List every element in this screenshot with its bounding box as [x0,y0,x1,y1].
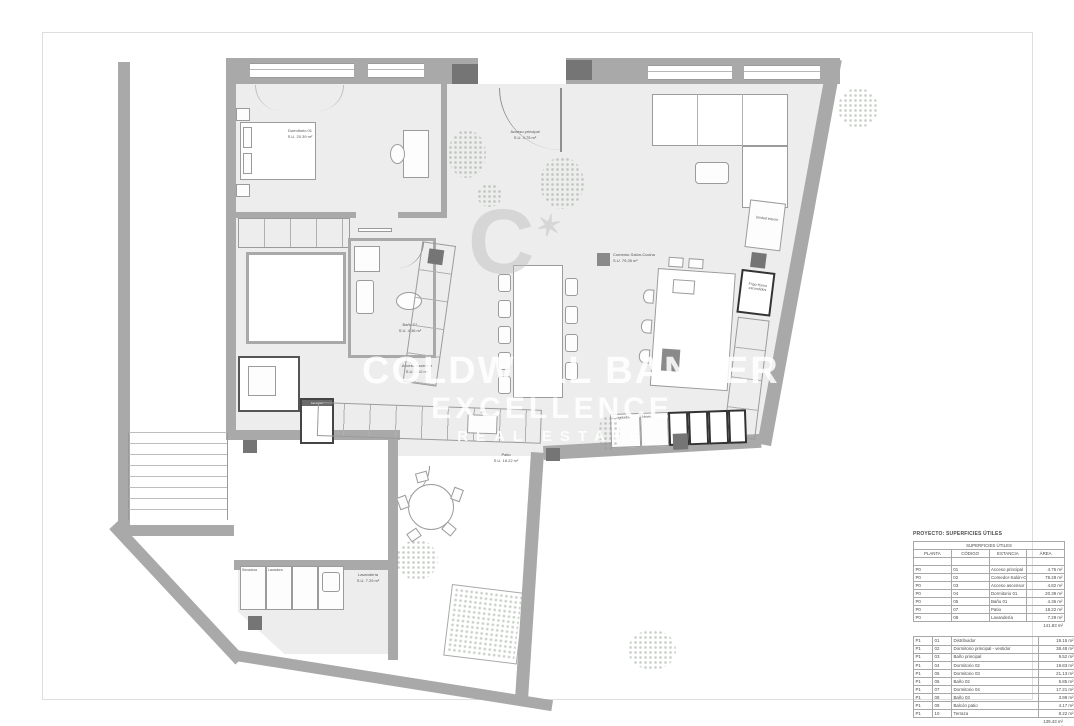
column [427,248,444,265]
wall-patio-right [515,452,544,701]
watermark-line3: REAL ESTATE [362,428,742,445]
plant [396,540,438,580]
table-cell: 07 [933,686,952,694]
table-cell: P0 [914,598,952,606]
sliding-door [358,228,392,232]
table-cell: Dormitorio 02 [952,661,1039,669]
island-sink [672,279,695,295]
room-label-lavanderia: Lavandería S.U. 7.29 m² [346,572,390,584]
fridge-oven-column: Frigo-Horno escondidos [736,269,775,317]
table-cell: P1 [914,661,933,669]
table-cell: P0 [914,573,952,581]
table-cell: 07 [951,606,989,614]
table-cell: P1 [914,710,933,718]
table-row: P107Dormitorio 0417.21 m² [914,686,1074,694]
table-cell: 08 [933,694,952,702]
column [546,448,560,461]
table-cell: P1 [914,677,933,685]
stool [640,319,652,334]
laundry-counter: Secadora Lavadora [240,566,344,610]
table-cell: 10 [933,710,952,718]
table-row: P005Baño 014.36 m² [914,598,1065,606]
table-row: P007Patio18.22 m² [914,606,1065,614]
planting-bed [443,584,525,664]
label-lavadora: Lavadora [268,568,292,572]
table-p0: SUPERFICIES ÚTILES PLANTA CÓDIGO ESTANCI… [913,541,1065,622]
table-p1: P101Distribuidor19.15 m²P102Dormitorio p… [913,636,1074,718]
table-cell: 18.22 m² [1027,606,1065,614]
window [648,65,732,80]
room-label-patio: Patio S.U. 18.22 m² [478,452,534,464]
coffee-table [695,162,729,184]
table-row: P101Distribuidor19.15 m² [914,637,1074,645]
table-cell: 4.17 m² [1039,702,1074,710]
table-cell: 02 [933,645,952,653]
wall-stairwell [226,82,236,440]
column [566,60,592,80]
table-caption: SUPERFICIES ÚTILES [914,542,1065,550]
table-cell: 19.15 m² [1039,637,1074,645]
table-cell: P1 [914,686,933,694]
table-cell: 3.98 m² [1039,694,1074,702]
table-cell: 03 [933,653,952,661]
table-caption-row: SUPERFICIES ÚTILES [914,542,1065,550]
table-cell: 04 [951,590,989,598]
table-header-row: PLANTA CÓDIGO ESTANCIA ÁREA [914,550,1065,558]
sofa-seam [697,94,698,146]
table-cell: Baño principal [952,653,1039,661]
window [368,63,424,78]
table-cell: 17.21 m² [1039,686,1074,694]
table-cell: P1 [914,653,933,661]
area-tables: PROYECTO: SUPERFICIES ÚTILES SUPERFICIES… [913,531,1066,726]
table-row: P004Dormitorio 0120.39 m² [914,590,1065,598]
table-cell: P1 [914,637,933,645]
shower [354,246,380,272]
room-label-dormitorio-01: Dormitorio 01 S.U. 20.39 m² [268,128,332,140]
table-cell: P1 [914,669,933,677]
table-cell: 79.28 m² [1027,573,1065,581]
table-row: P102Dormitorio principal - vestidor38.48… [914,645,1074,653]
table-cell: Dormitorio principal - vestidor [952,645,1039,653]
table-cell: 19.83 m² [1039,661,1074,669]
table-cell: 05 [951,598,989,606]
table-cell: 8.22 m² [1039,710,1074,718]
dryer: Secadora [240,566,266,610]
sink [356,280,374,314]
plant [838,88,878,128]
table-cell: Acceso principal [989,565,1027,573]
stool [643,289,655,304]
wall-diagonal-sw [109,521,244,664]
laundry-unit [292,566,318,610]
table-cell: P0 [914,606,952,614]
table-cell: Lavandería [989,614,1027,622]
table-cell: 5.85 m² [1039,677,1074,685]
chair [498,326,511,344]
pillow [243,127,252,148]
label-frigo-horno: Frigo-Horno escondidos [743,281,772,293]
spacer-row [914,558,1065,566]
table-cell: 01 [933,637,952,645]
nightstand [236,184,250,197]
table-cell: 01 [951,565,989,573]
plant [628,630,676,670]
entry-door-leaf [560,88,562,152]
table-row: P104Dormitorio 0219.83 m² [914,661,1074,669]
col-codigo: CÓDIGO [951,550,989,558]
table-cell: 04 [933,661,952,669]
table-cell: 08 [951,614,989,622]
wall-patio-left [388,437,398,660]
column [243,440,257,453]
wall-under-stairs [118,525,234,536]
desk-chair [390,144,405,164]
label-secadora: Secadora [242,568,266,572]
table-cell: 20.39 m² [1027,590,1065,598]
table-cell: Patio [989,606,1027,614]
window [744,65,820,80]
plant [447,587,523,661]
stool [668,257,684,268]
stool [688,258,704,269]
table-cell: P0 [914,590,952,598]
table-cell: 05 [933,669,952,677]
column [750,252,767,269]
table-row: P105Dormitorio 0321.13 m² [914,669,1074,677]
table-cell: 06 [933,677,952,685]
sofa [652,94,788,146]
stairs [128,432,228,520]
project-title: PROYECTO: SUPERFICIES ÚTILES [913,531,1066,537]
table-row: P008Lavandería7.29 m² [914,614,1065,622]
entry-opening [478,58,566,84]
table-row: P003Acceso ascensor4.82 m² [914,581,1065,589]
table-cell: P1 [914,702,933,710]
table-cell: 4.75 m² [1027,565,1065,573]
table-cell: 03 [951,581,989,589]
table-row: P103Baño principal9.52 m² [914,653,1074,661]
table-cell: 02 [951,573,989,581]
table-cell: 21.13 m² [1039,669,1074,677]
table-cell: Distribuidor [952,637,1039,645]
chair [498,300,511,318]
washer: Lavadora [266,566,292,610]
pillow [243,153,252,174]
column [452,64,478,84]
table-cell: Acceso ascensor [989,581,1027,589]
table-cell: P0 [914,614,952,622]
plant [540,157,584,209]
col-planta: PLANTA [914,550,952,558]
table-cell: P1 [914,694,933,702]
watermark-logo-c: C [468,196,534,288]
patio-chair [415,471,429,484]
shaft-machine [248,366,276,396]
desk [403,130,429,178]
floor-plan-sheet: Dormitorio 01 S.U. 20.39 m² Acceso princ… [0,0,1074,726]
table-cell: Dormitorio 01 [989,590,1027,598]
sofa-seam [742,94,743,146]
table-cell: Dormitorio 03 [952,669,1039,677]
table-cell: Dormitorio 04 [952,686,1039,694]
wall-bedroom-right [441,84,447,216]
table-row: P109Balcón patio4.17 m² [914,702,1074,710]
room-marker [597,253,610,266]
chair [565,278,578,296]
column [248,616,262,630]
table-cell: P1 [914,645,933,653]
table-cell: Baño 03 [952,694,1039,702]
laundry-sink [322,572,340,592]
table-cell: 4.36 m² [1027,598,1065,606]
table-row: P106Baño 025.85 m² [914,677,1074,685]
col-estancia: ESTANCIA [989,550,1027,558]
table-cell: 09 [933,702,952,710]
nightstand [236,108,250,121]
watermark-line1: COLDWELL BANKER [362,350,742,393]
table-cell: 4.82 m² [1027,581,1065,589]
wardrobe [238,218,350,248]
table-cell: Baño 01 [989,598,1027,606]
table-row: P108Baño 033.98 m² [914,694,1074,702]
table-cell: Comedor-Salón-Cocina [989,573,1027,581]
table-cell: P0 [914,565,952,573]
table-cell: 9.52 m² [1039,653,1074,661]
table-cell: 7.29 m² [1027,614,1065,622]
table-cell: Terraza [952,710,1039,718]
table-cell: Baño 02 [952,677,1039,685]
plant [448,130,486,178]
label-unidad-interior: Unidad interior [752,215,782,223]
lightwell [246,252,346,344]
chair [565,306,578,324]
table-row: P001Acceso principal4.75 m² [914,565,1065,573]
table-cell: P0 [914,581,952,589]
table-row: P002Comedor-Salón-Cocina79.28 m² [914,573,1065,581]
patio-chair [450,487,464,503]
col-area: ÁREA [1027,550,1065,558]
watermark-line2: EXCELLENCE [362,392,742,426]
room-label-acceso-principal: Acceso principal S.U. 4.75 m² [492,129,558,141]
wall-bedroom-bottom-b [398,212,447,218]
table-row: P110Terraza8.22 m² [914,710,1074,718]
window [250,63,354,78]
table-cell: Balcón patio [952,702,1039,710]
table-cell: 38.48 m² [1039,645,1074,653]
ac-closet: Unidad interior [744,199,786,251]
